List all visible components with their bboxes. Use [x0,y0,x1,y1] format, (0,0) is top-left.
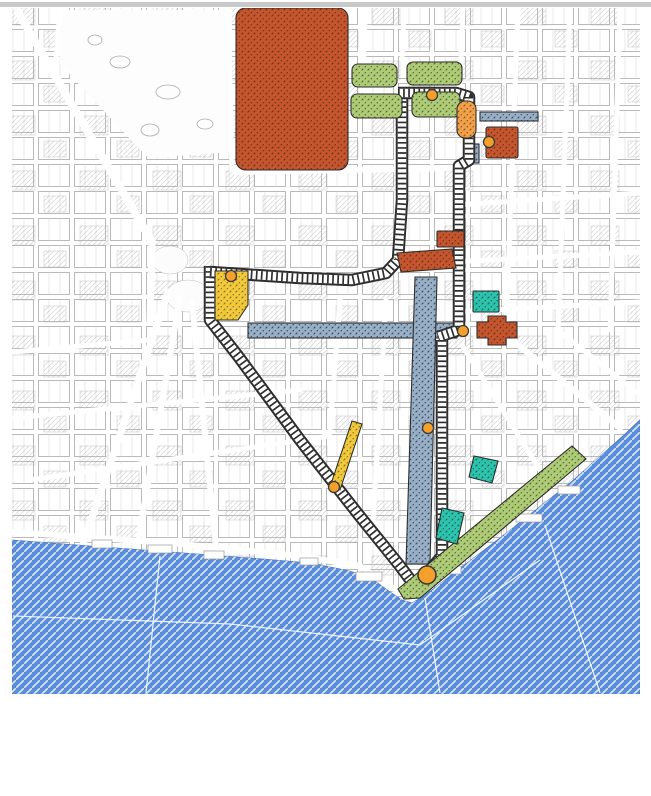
pier [558,486,580,494]
station-marker [458,326,469,337]
main-station-marker [418,566,436,584]
plaza [166,280,210,312]
station-marker [329,482,340,493]
pier [92,540,112,548]
pier [148,545,172,553]
station-marker [484,137,495,148]
legend: ADMINISTRATION GREENLAND COMMERCIAL RELI… [0,702,651,796]
zone-religious [457,101,476,138]
station-marker [226,271,237,282]
pier [356,572,382,581]
station-marker [427,90,438,101]
pier [516,514,542,522]
urban-plan-page: ADMINISTRATION GREENLAND COMMERCIAL RELI… [0,0,651,796]
top-divider [0,2,651,7]
plaza [152,246,188,274]
pier [300,558,318,565]
pier [204,551,224,559]
map-canvas [12,8,640,694]
transit-plan-map [12,8,640,694]
station-marker [423,423,434,434]
